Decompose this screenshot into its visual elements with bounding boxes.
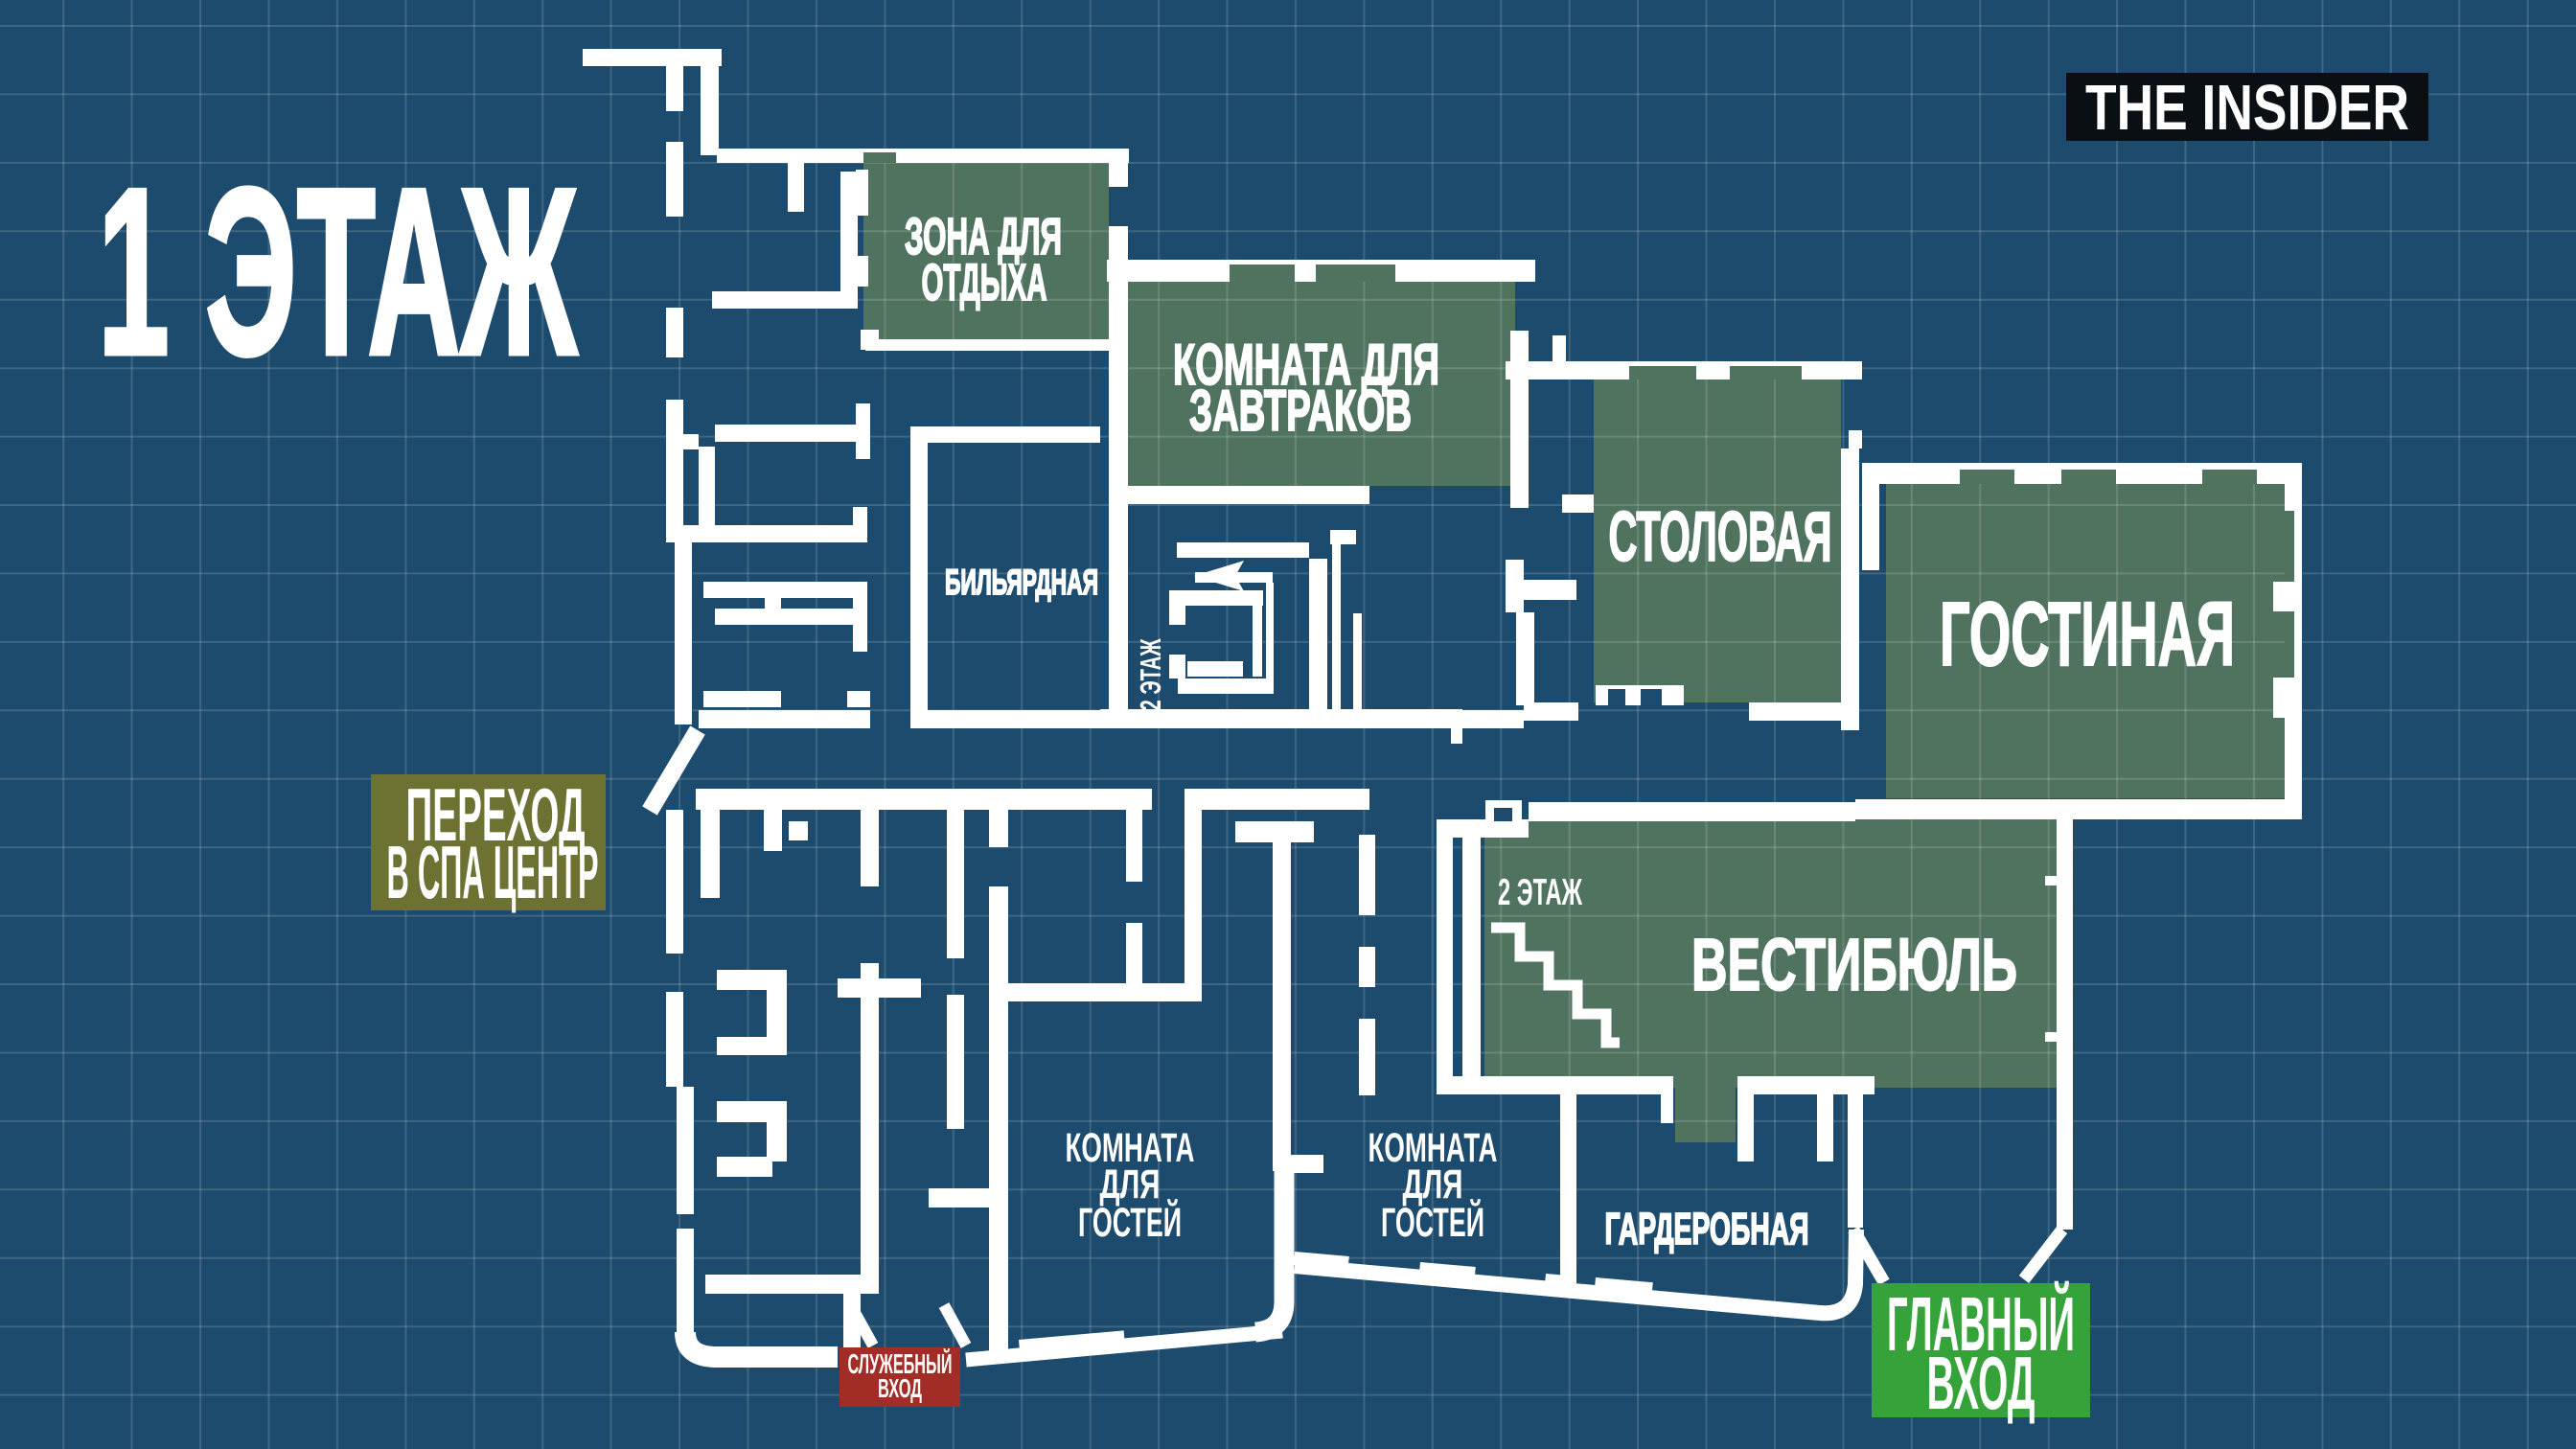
svg-text:ГОСТЕЙ: ГОСТЕЙ (1381, 1199, 1484, 1246)
svg-text:ЗАВТРАКОВ: ЗАВТРАКОВ (1189, 379, 1412, 443)
svg-text:ГАРДЕРОБНАЯ: ГАРДЕРОБНАЯ (1605, 1204, 1809, 1253)
svg-text:ВХОД: ВХОД (878, 1373, 922, 1403)
svg-text:СТОЛОВАЯ: СТОЛОВАЯ (1609, 498, 1832, 576)
svg-text:ГОСТИНАЯ: ГОСТИНАЯ (1940, 584, 2235, 685)
svg-text:1 ЭТАЖ: 1 ЭТАЖ (98, 138, 578, 404)
svg-text:БИЛЬЯРДНАЯ: БИЛЬЯРДНАЯ (945, 563, 1098, 602)
svg-text:В СПА ЦЕНТР: В СПА ЦЕНТР (387, 830, 599, 914)
svg-text:ВЕСТИБЮЛЬ: ВЕСТИБЮЛЬ (1691, 924, 2017, 1006)
svg-text:2 ЭТАЖ: 2 ЭТАЖ (1134, 638, 1167, 711)
svg-text:ВХОД: ВХОД (1927, 1341, 2035, 1425)
svg-text:ОТДЫХА: ОТДЫХА (922, 254, 1047, 311)
svg-text:THE INSIDER: THE INSIDER (2085, 72, 2409, 144)
svg-text:2 ЭТАЖ: 2 ЭТАЖ (1498, 872, 1582, 913)
svg-text:ГОСТЕЙ: ГОСТЕЙ (1078, 1199, 1182, 1246)
